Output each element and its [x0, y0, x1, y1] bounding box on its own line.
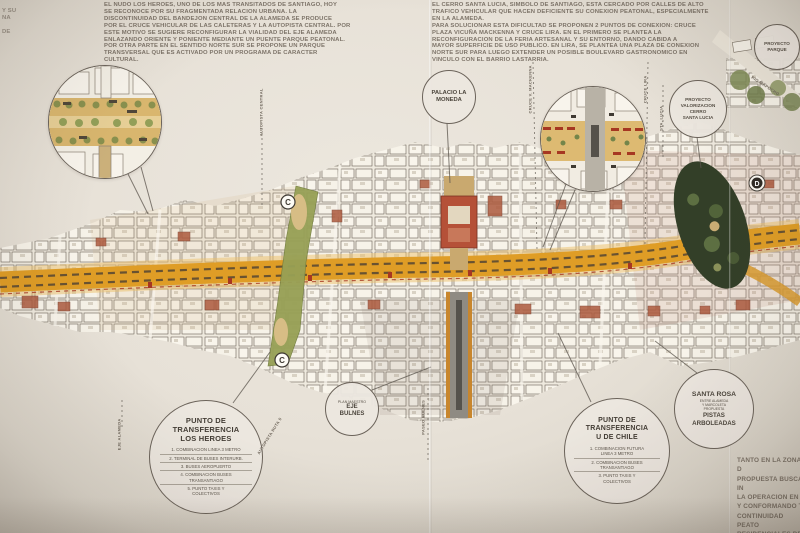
- street-label-eje-alameda: EJE ALAMEDA: [118, 412, 123, 456]
- callout-santa-rosa-label: PISTAS ARBOLEADAS: [692, 412, 736, 427]
- list-item: 3. PUNTO TAXIS Y COLECTIVOS: [574, 472, 659, 485]
- callout-santa-rosa: SANTA ROSA ENTRE ALAMEDA Y MARCOLETA PRO…: [674, 369, 754, 449]
- poster-photo: C C D EL NUDO LOS HEROES, UNO DE LOS MAS…: [0, 0, 800, 533]
- inset-alameda-art: [49, 66, 162, 179]
- list-item: 1. COMBINACION FUTURA LINEA 3 METRO: [574, 445, 659, 459]
- callout-parque-project-label: PROYECTO PARQUE: [764, 41, 790, 53]
- street-label-autopista-central: AUTOPISTA CENTRAL: [260, 82, 265, 142]
- callout-plan-bulnes: PLAN MAESTRO EJE BULNES: [325, 382, 379, 436]
- list-item: 1. COMBINACION LINEA 3 METRO: [160, 446, 252, 454]
- list-item: 2. TERMINAL DE BUSES INTERURB.: [160, 455, 252, 463]
- callout-parque-project: PROYECTO PARQUE: [754, 24, 800, 70]
- callout-palacio-moneda-label: PALACIO LA MONEDA: [432, 90, 467, 104]
- tint-south: [360, 300, 520, 415]
- paragraph-santa-lucia: EL CERRO SANTA LUCIA, SIMBOLO DE SANTIAG…: [432, 2, 726, 64]
- marker-c-north: C: [285, 198, 291, 207]
- paragraph-bottom-right: TANTO EN LA ZONA D PROPUESTA BUSCA IN LA…: [737, 456, 800, 533]
- marker-d-east: D: [754, 181, 759, 188]
- callout-santa-rosa-title: SANTA ROSA: [692, 391, 736, 398]
- callout-cerro-project-label: PROYECTO VALORIZACION CERRO SANTA LUCIA: [681, 97, 716, 121]
- list-item: 5. PUNTO TAXIS Y COLECTIVOS: [160, 485, 252, 498]
- list-item: 4. COMBINACION BUSES TRANSANTIAGO: [160, 471, 252, 485]
- callout-palacio-moneda: PALACIO LA MONEDA: [422, 70, 476, 124]
- list-item: 3. BUSES AEROPUERTO: [160, 463, 252, 471]
- transfer-los-heroes-title: PUNTO DE TRANSFERENCIA LOS HEROES: [173, 416, 240, 443]
- street-label-paseo-bulnes: PASEO BULNES: [422, 392, 427, 442]
- callout-transfer-los-heroes: PUNTO DE TRANSFERENCIA LOS HEROES 1. COM…: [149, 400, 263, 514]
- street-label-santa-lucia: STA. LUCIA: [660, 98, 665, 138]
- callout-cerro-project: PROYECTO VALORIZACION CERRO SANTA LUCIA: [669, 80, 727, 138]
- inset-detail-alameda: [48, 65, 162, 179]
- callout-transfer-u-chile: PUNTO DE TRANSFERENCIA U DE CHILE 1. COM…: [564, 398, 670, 504]
- transfer-u-chile-title: PUNTO DE TRANSFERENCIA U DE CHILE: [586, 417, 649, 442]
- transfer-u-chile-items: 1. COMBINACION FUTURA LINEA 3 METRO 2. C…: [574, 445, 659, 485]
- street-label-cruce-lira: CRUCE LIRA: [644, 65, 649, 113]
- eje-bulnes-axis: [441, 176, 477, 418]
- edge-text-fragments: Y SU NA DE: [2, 8, 32, 36]
- callout-plan-bulnes-label: EJE BULNES: [340, 404, 365, 419]
- callout-santa-rosa-subtitle: ENTRE ALAMEDA Y MARCOLETA PROPUESTA: [700, 399, 728, 412]
- marker-c-south: C: [279, 356, 285, 365]
- street-label-cruce-mackenna: CRUCE V. MACKENNA: [529, 61, 534, 117]
- inset-detail-cruce: [540, 86, 646, 192]
- transfer-los-heroes-items: 1. COMBINACION LINEA 3 METRO 2. TERMINAL…: [160, 446, 252, 498]
- paragraph-los-heroes: EL NUDO LOS HEROES, UNO DE LOS MAS TRANS…: [104, 2, 428, 64]
- inset-cruce-art: [541, 87, 646, 192]
- list-item: 2. COMBINACION BUSES TRANSANTIAGO: [574, 459, 659, 473]
